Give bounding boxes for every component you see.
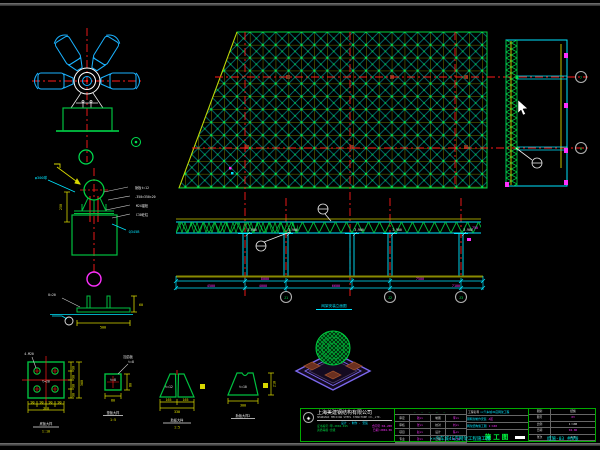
info-label: 图别: [529, 409, 551, 414]
svg-text:8: 8: [580, 147, 582, 151]
sign-value: 钱××: [410, 415, 431, 422]
dimension-lines: [174, 276, 485, 292]
svg-text:7: 7: [580, 76, 582, 80]
sign-label: 制图: [431, 415, 446, 422]
leader-label: 4-M20: [24, 352, 34, 356]
dim-label: 90: [48, 401, 52, 405]
info-label: 日期: [529, 428, 551, 433]
dim-label: 360: [43, 407, 49, 411]
dim-label: 210: [273, 381, 277, 387]
detail-caption: 底板大样: [40, 421, 54, 426]
info-label: 图号: [529, 415, 551, 420]
info-value: 04.06: [551, 428, 595, 433]
dim-label: 300: [240, 404, 246, 408]
grid-bubble: J1: [281, 292, 292, 303]
svg-text:3.900: 3.900: [354, 228, 364, 232]
company-logo-icon: ◈: [303, 412, 314, 423]
svg-text:J2: J2: [388, 296, 392, 300]
title-block-company: ◈ 上海美建钢结构有限公司 SHANGHAI MEIJIAN STEEL STR…: [301, 409, 395, 441]
svg-text:J3: J3: [459, 296, 463, 300]
detail-caption: 肋板大样2: [236, 413, 251, 418]
plate-label: t=20: [42, 380, 50, 384]
item-zone: A区: [487, 416, 493, 422]
item-row: 钢网架制作安装: [467, 416, 487, 422]
detail-caption: 垫板大样: [107, 410, 121, 415]
sign-label: 审核: [395, 422, 410, 429]
sign-value: 陈××: [446, 429, 467, 436]
dim-label: 80: [129, 383, 133, 387]
blank-signature-box: [515, 436, 525, 439]
info-value: 结施: [551, 409, 595, 414]
pad-plate-detail[interactable]: t=8 加劲板 t=8 80 80 垫板大样 1:5: [103, 354, 134, 422]
dim-label: 7500: [416, 277, 424, 281]
dim-label: 80: [111, 399, 115, 403]
base-plate-detail[interactable]: t=20 4-M20 90 90 90 90 360 90 90 90 90 3…: [22, 352, 84, 434]
dim-label: 90: [72, 393, 76, 397]
svg-text:3.900: 3.900: [247, 228, 257, 232]
weld-arrow-icon: [54, 164, 80, 184]
dim-label: 90: [72, 366, 76, 370]
dim-label: 90: [72, 384, 76, 388]
dim-lines: [105, 374, 130, 399]
sign-value: 李××: [446, 415, 467, 422]
plate-label: t=12: [165, 385, 173, 389]
leader-label: C30砼柱: [136, 212, 149, 217]
sign-label: 校对: [431, 422, 446, 429]
leader-label: δ=20: [48, 293, 56, 297]
plate-label: t=10: [239, 385, 247, 389]
sheet-footer-left: ××汽车城4S店网架工程施工图: [430, 436, 490, 442]
columns: [238, 234, 468, 277]
section-view[interactable]: 7 8: [505, 40, 587, 187]
dim-label: 90: [57, 401, 61, 405]
grid-bubble: J2: [385, 292, 396, 303]
plate-label: t=8: [110, 378, 116, 382]
dim-label: 8000: [261, 277, 269, 281]
project-value: ××汽车城4S店网架工程: [480, 409, 509, 415]
leader-label: 加劲板: [123, 354, 133, 359]
base-section-detail[interactable]: 60 500 δ=20: [48, 293, 143, 330]
view-caption: 网架安装立面图: [321, 303, 347, 308]
detail-callout-icon: [318, 204, 331, 221]
item-scale: 1:100: [487, 423, 497, 429]
sign-value: 刘××: [446, 422, 467, 429]
drawing-sheet: 250 φ300球 肋板t=12 -350×350×20 M24锚栓 C30砼柱…: [0, 0, 600, 450]
dim-label: 165: [182, 398, 188, 402]
detail-scale: 1:5: [174, 426, 180, 430]
detail-callout-icon: [516, 148, 542, 168]
detail-scale: 1:10: [42, 430, 50, 434]
sign-label: 设计: [431, 429, 446, 436]
leader-label: t=8: [128, 360, 134, 364]
leader-label: -350×350×20: [134, 195, 155, 199]
support-node-detail[interactable]: 250 φ300球 肋板t=12 -350×350×20 M24锚栓 C30砼柱…: [35, 164, 156, 286]
sign-value: 张××: [410, 422, 431, 429]
info-value: 1:100: [551, 422, 595, 427]
detail-caption: 肋板大样: [171, 418, 185, 423]
dim-label: 360: [80, 380, 84, 386]
dim-label: 90: [72, 375, 76, 379]
leader-label: 肋板t=12: [135, 185, 149, 190]
cert-grade: 资质等级:壹级: [317, 429, 335, 433]
svg-text:J1: J1: [284, 296, 288, 300]
sign-label: 专业: [395, 436, 410, 443]
svg-text:3.900: 3.900: [392, 228, 402, 232]
mouse-cursor-icon: [518, 100, 528, 115]
node-3d-view[interactable]: [296, 331, 370, 390]
weld-bubble-icon: [132, 138, 141, 147]
leader-label: Q345B: [129, 230, 140, 234]
dim-label: 60: [139, 303, 143, 307]
dim-label: 4500: [207, 284, 215, 288]
detail-scale: 1:5: [110, 418, 116, 422]
sign-value: 赵××: [410, 429, 431, 436]
cad-drawing-canvas: 250 φ300球 肋板t=12 -350×350×20 M24锚栓 C30砼柱…: [0, 0, 600, 450]
rib-single-detail[interactable]: t=10 300 210 肋板大样2: [228, 373, 277, 419]
info-label: 比例: [529, 422, 551, 427]
dim-label: 90: [30, 401, 34, 405]
info-value: 03: [551, 415, 595, 420]
dim-label: 250: [59, 204, 63, 210]
sign-value: 孙××: [410, 436, 431, 443]
grid-bubble: J3: [456, 292, 467, 303]
ball-joint-detail[interactable]: [32, 28, 142, 164]
dim-label: 6600: [332, 284, 340, 288]
dim-label: 4000: [259, 284, 267, 288]
sign-label: 项目: [395, 429, 410, 436]
dim-label: 90: [39, 401, 43, 405]
svg-text:3.900: 3.900: [288, 228, 298, 232]
rib-pair-detail[interactable]: t=12 165 165 330 肋板大样 1:5: [160, 370, 205, 430]
leader-label: M24锚栓: [136, 203, 149, 208]
elevation-view[interactable]: 8000 7500 4500 4000 6600 7100 750 J1 J2 …: [174, 204, 485, 310]
svg-text:3.900: 3.900: [463, 228, 473, 232]
sign-label: 审定: [395, 415, 410, 422]
leader-label: φ300球: [35, 175, 48, 180]
dim-label: 500: [100, 326, 106, 330]
detail-callout-icon: [256, 232, 290, 251]
date: 日期:2004.06: [373, 429, 392, 433]
dim-label: 750: [472, 226, 478, 230]
dim-label: 330: [174, 410, 180, 414]
project-label: 工程名称: [467, 409, 480, 415]
sheet-footer-right: 结施-03 共8张: [547, 436, 579, 442]
dim-label: 7100: [452, 284, 460, 288]
truss-plan-view[interactable]: [179, 32, 487, 188]
dim-label: 165: [165, 398, 171, 402]
item-row: 网架结构施工图: [467, 423, 487, 429]
